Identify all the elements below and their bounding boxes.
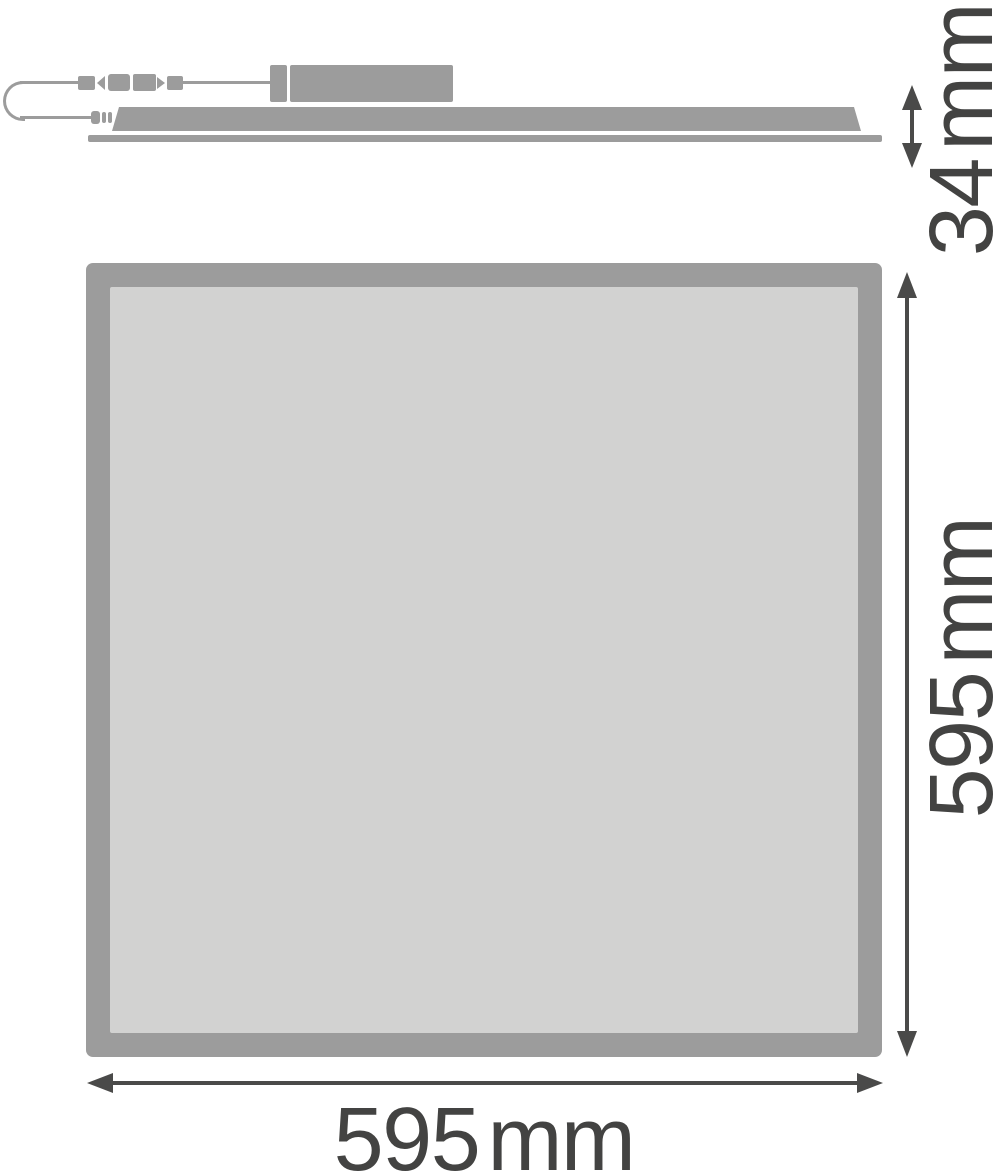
panel-frame [86, 263, 882, 1057]
arrow-right-icon [857, 1073, 883, 1093]
panel-light-surface [110, 287, 858, 1033]
connector-plug-body-2 [167, 76, 183, 90]
arrow-down-icon [897, 1031, 917, 1057]
panel-frame-flange [88, 135, 882, 142]
connector-socket-body [108, 74, 130, 91]
cable-line-to-panel [20, 116, 92, 119]
cable-loop [3, 81, 25, 121]
connector-wedge-left [97, 76, 105, 90]
cable-gland-ridge-2 [108, 112, 112, 123]
height-dimension-label: 34 mm [917, 4, 1000, 256]
panel-profile [112, 107, 861, 131]
driver-box [290, 65, 453, 102]
side-dimension-arrow [905, 295, 909, 1033]
width-dimension-arrow [110, 1081, 860, 1085]
cable-line-to-driver [183, 81, 271, 84]
connector-wedge-right [157, 77, 165, 89]
cable-line [20, 81, 80, 84]
cable-gland [91, 111, 100, 124]
connector-socket-body-2 [133, 74, 156, 91]
driver-box-end-cap [270, 65, 287, 102]
dimension-drawing: 34 mm 595 mm 595 mm [0, 0, 1000, 1176]
cable-gland-ridge [102, 112, 106, 123]
connector-plug-body [78, 76, 95, 90]
side-dimension-label: 595 mm [917, 518, 1000, 819]
width-dimension-label: 595 mm [334, 1095, 635, 1176]
